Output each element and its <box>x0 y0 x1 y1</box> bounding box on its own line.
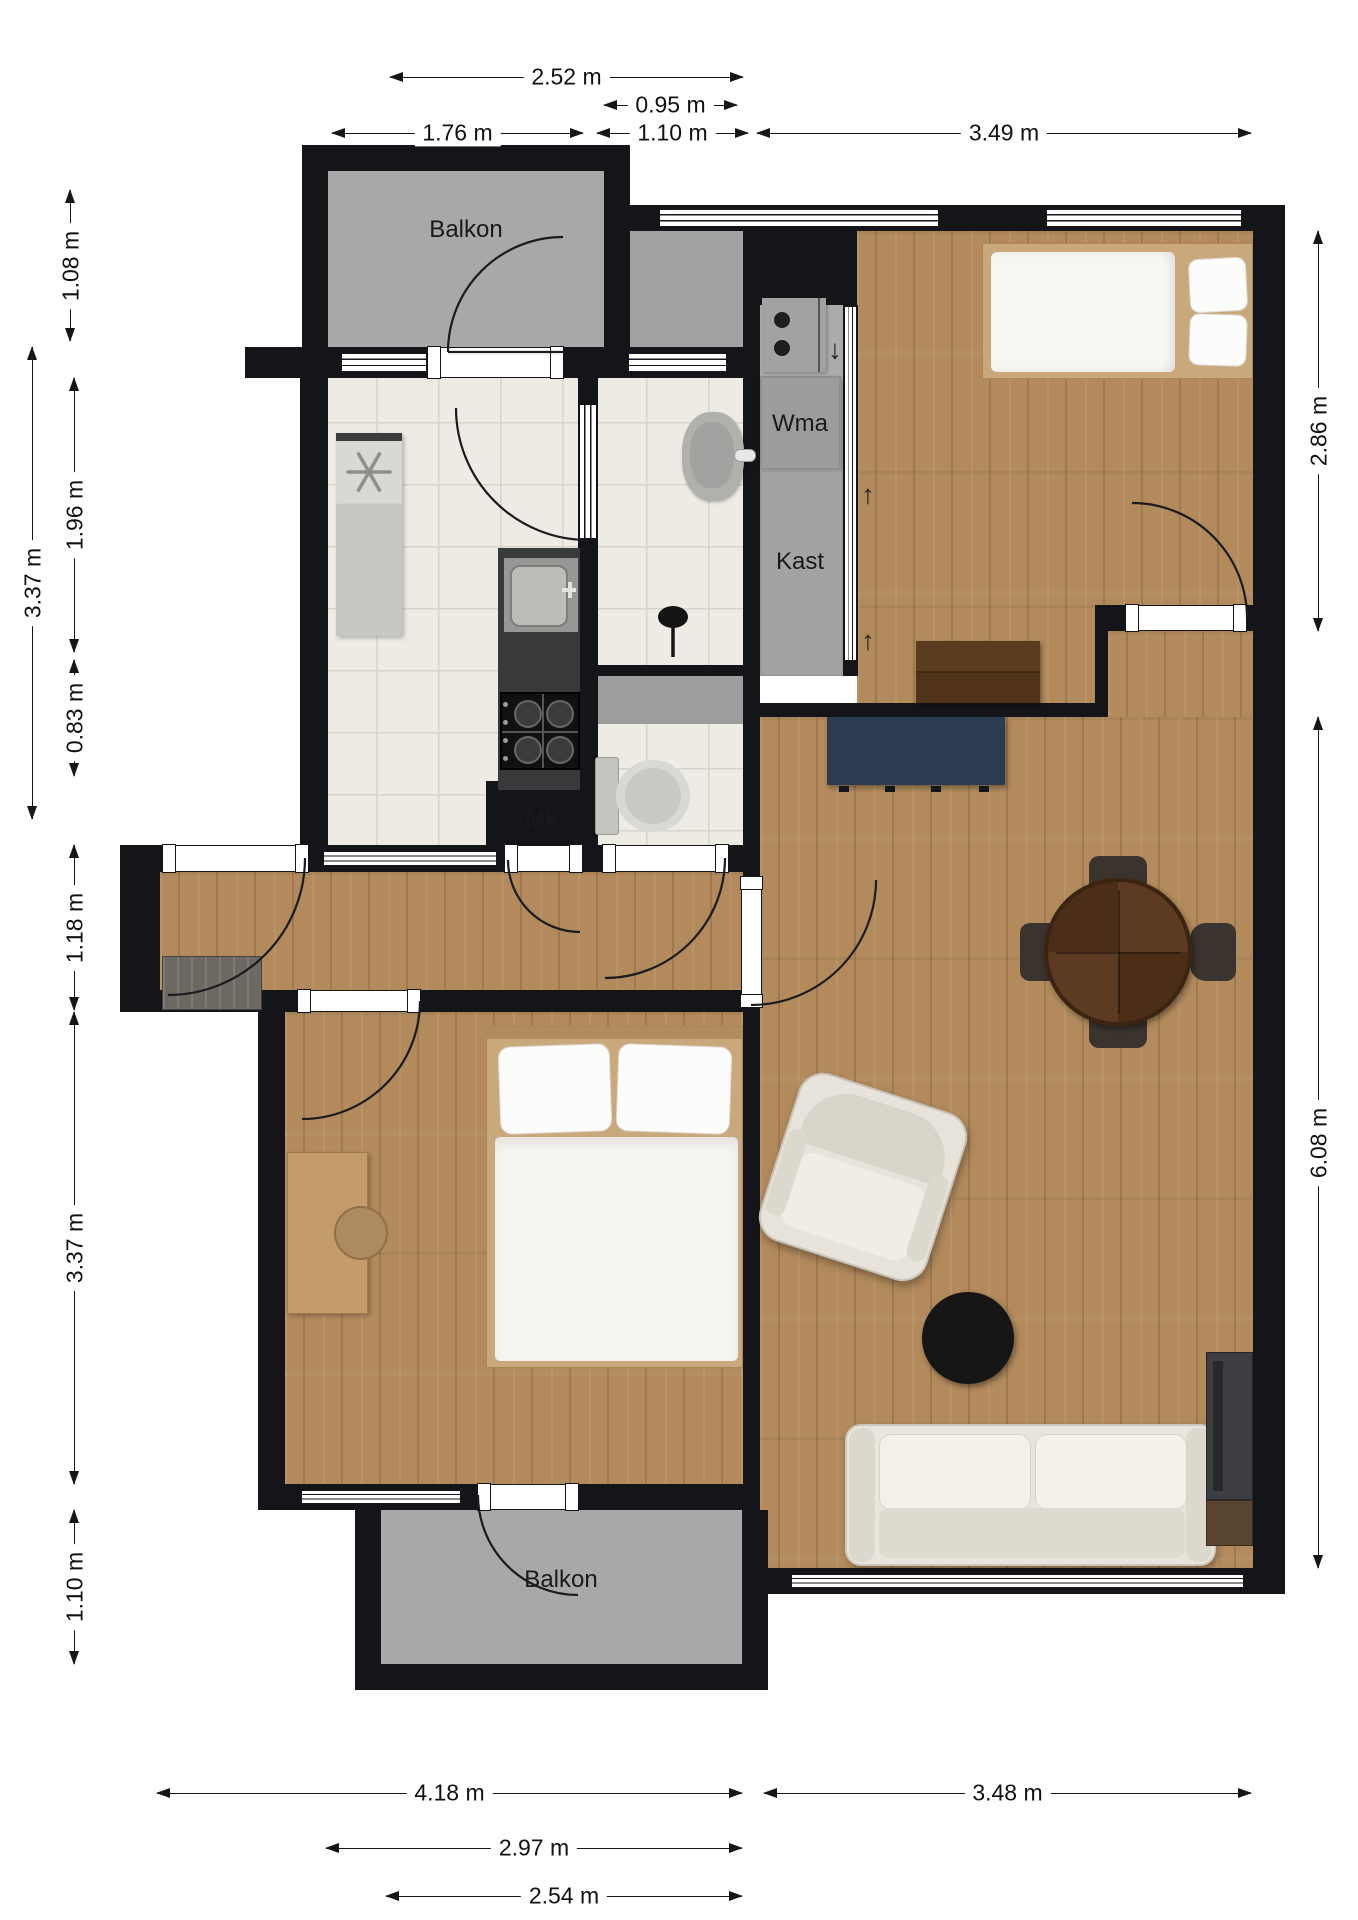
front-door-arc <box>168 858 305 995</box>
dim-bottom-297: 2.97 m <box>326 1848 742 1849</box>
dim-left-110: 1.10 m <box>74 1510 75 1664</box>
dim-top-095: 0.95 m <box>604 105 737 106</box>
floor-plan: Balkon Wma Kast Mk Balkon ↓ ↑ ↑ 2.52 m 0… <box>0 0 1358 1920</box>
balcony-top-door-arc <box>448 237 563 352</box>
closet-label: Kast <box>776 548 824 576</box>
dim-bottom-418: 4.18 m <box>157 1793 742 1794</box>
meter-cupboard-label: Mk <box>525 806 557 834</box>
flow-arrow-up-icon: ↑ <box>861 480 875 511</box>
dim-right-608: 6.08 m <box>1318 717 1319 1568</box>
dim-top-110: 1.10 m <box>597 133 748 134</box>
dim-top-252: 2.52 m <box>390 77 743 78</box>
dim-left-108: 1.08 m <box>70 190 71 341</box>
balcony-top-label: Balkon <box>429 216 502 244</box>
flow-arrow-down-icon: ↓ <box>828 335 842 366</box>
glass-door-arc <box>456 408 588 540</box>
fridge-asterisk-icon <box>348 454 390 490</box>
door-swing-arcs <box>0 0 1358 1920</box>
mk-door-arc <box>508 860 580 932</box>
washing-machine-label: Wma <box>772 410 828 438</box>
bedroom1-door-arc <box>1132 503 1247 618</box>
dim-left-337b: 3.37 m <box>74 1012 75 1484</box>
dim-bottom-254: 2.54 m <box>386 1896 742 1897</box>
wc-door-arc <box>605 858 725 978</box>
bedroom2-door-arc <box>302 1001 420 1119</box>
dim-left-196: 1.96 m <box>74 378 75 652</box>
dim-left-337a: 3.37 m <box>32 347 33 819</box>
dim-top-349: 3.49 m <box>757 133 1251 134</box>
balcony-bottom-label: Balkon <box>524 1566 597 1594</box>
dim-left-118: 1.18 m <box>74 845 75 1010</box>
dim-bottom-348: 3.48 m <box>764 1793 1251 1794</box>
dim-right-286: 2.86 m <box>1318 231 1319 631</box>
dim-left-083: 0.83 m <box>74 660 75 776</box>
dim-top-176: 1.76 m <box>332 133 583 134</box>
living-door-arc <box>751 880 876 1005</box>
flow-arrow-up-icon: ↑ <box>861 626 875 657</box>
